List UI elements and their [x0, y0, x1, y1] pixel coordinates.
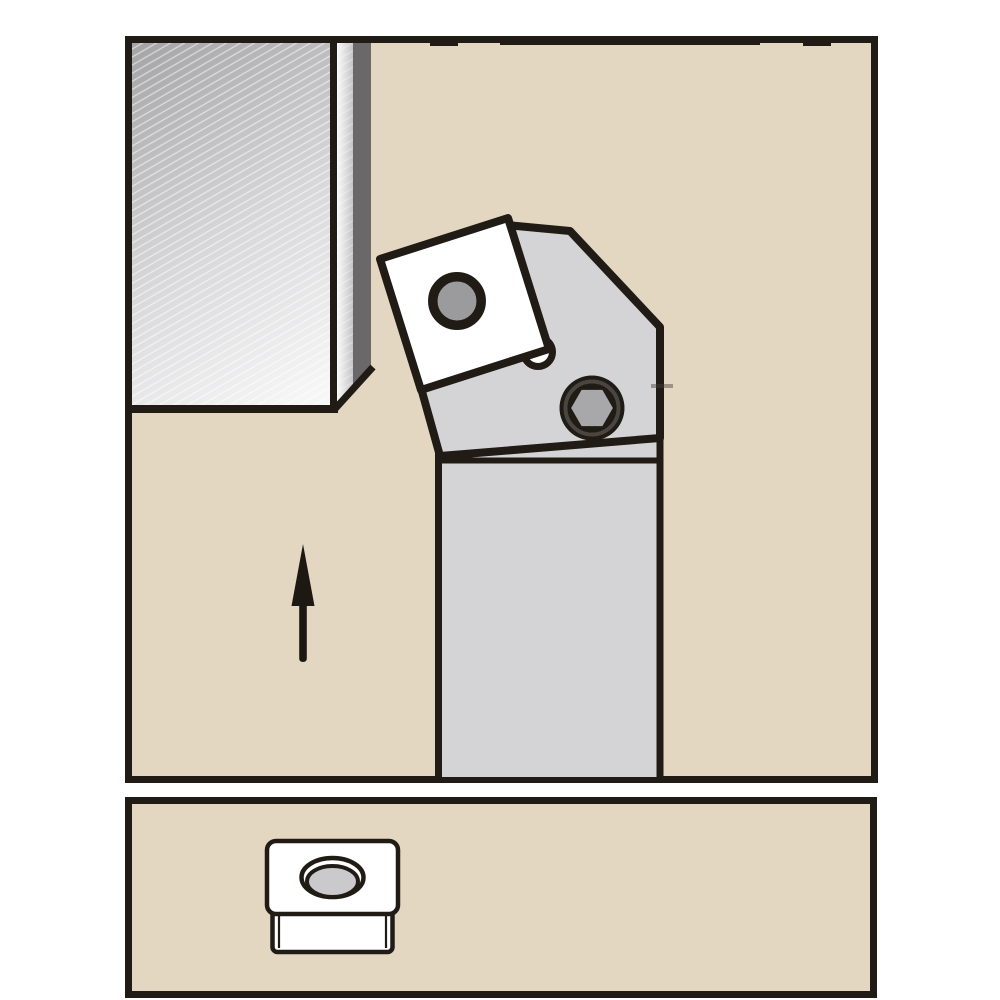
- workpiece-side-face: [353, 43, 371, 388]
- figure-canvas: [0, 0, 1000, 1000]
- top-border-dash: [803, 36, 831, 46]
- workpiece-machined-strip-hatching: [337, 43, 353, 407]
- hex-socket-icon: [570, 389, 614, 427]
- insert-center-hole: [433, 277, 481, 325]
- top-border-dash: [430, 36, 458, 46]
- tool-holder-diagram: [0, 0, 1000, 1000]
- tool-shank-body: [442, 434, 657, 777]
- clamp-hex-screw: [560, 376, 625, 441]
- insert-pictogram: [267, 841, 398, 952]
- insert-pictogram-side-face: [273, 911, 393, 952]
- insert-type-panel: [129, 801, 874, 995]
- workpiece: [127, 43, 373, 412]
- tool-shank: [439, 434, 661, 777]
- workpiece-hatching: [132, 43, 335, 409]
- insert-pictogram-hole-countersink: [307, 866, 358, 897]
- top-border-dash: [500, 36, 760, 45]
